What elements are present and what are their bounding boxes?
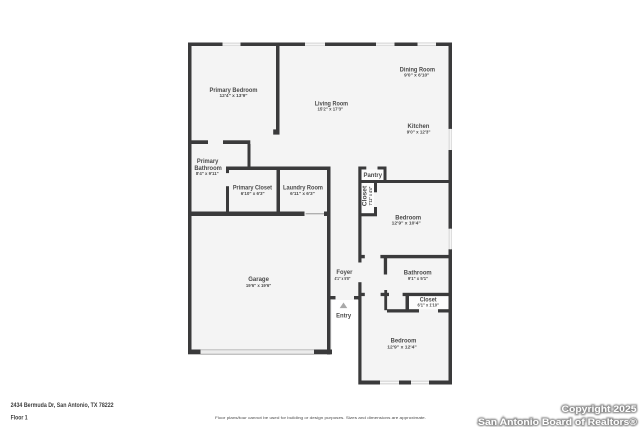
svg-text:Copyright 2025: Copyright 2025 [562,403,637,414]
svg-text:9'0" x 12'3": 9'0" x 12'3" [407,130,431,135]
svg-text:Floor 1: Floor 1 [11,414,28,421]
svg-text:12'9" x 10'4": 12'9" x 10'4" [392,221,421,226]
svg-text:Entry: Entry [336,313,351,320]
svg-text:Floor plans/tour cannot be use: Floor plans/tour cannot be used for buil… [215,415,426,420]
svg-text:19'6" x 19'6": 19'6" x 19'6" [246,283,271,288]
svg-text:12'4" x 13'9": 12'4" x 13'9" [220,93,248,98]
svg-text:9'0" x 6'10": 9'0" x 6'10" [404,72,429,77]
svg-text:12'9" x 12'4": 12'9" x 12'4" [387,344,417,349]
svg-text:Primary: Primary [197,158,219,165]
svg-text:Pantry: Pantry [364,172,383,179]
svg-text:San Antonio Board of Realtors®: San Antonio Board of Realtors® [478,416,637,427]
svg-text:Bedroom: Bedroom [391,337,417,344]
svg-text:15'2" x 17'3": 15'2" x 17'3" [318,107,344,112]
svg-text:8'4" x 9'11": 8'4" x 9'11" [196,171,219,176]
svg-text:6'10" x 6'3": 6'10" x 6'3" [241,191,265,196]
svg-text:7'11" x 4'4": 7'11" x 4'4" [368,187,373,206]
svg-text:2434 Bermuda Dr, San Antonio,: 2434 Bermuda Dr, San Antonio, TX 78222 [11,403,115,409]
svg-text:6'1" x 1'10": 6'1" x 1'10" [418,302,439,307]
svg-text:6'11" x 6'3": 6'11" x 6'3" [290,191,315,196]
svg-text:9'1" x 5'1": 9'1" x 5'1" [408,276,428,281]
svg-text:4'1" x 5'8": 4'1" x 5'8" [335,276,351,281]
